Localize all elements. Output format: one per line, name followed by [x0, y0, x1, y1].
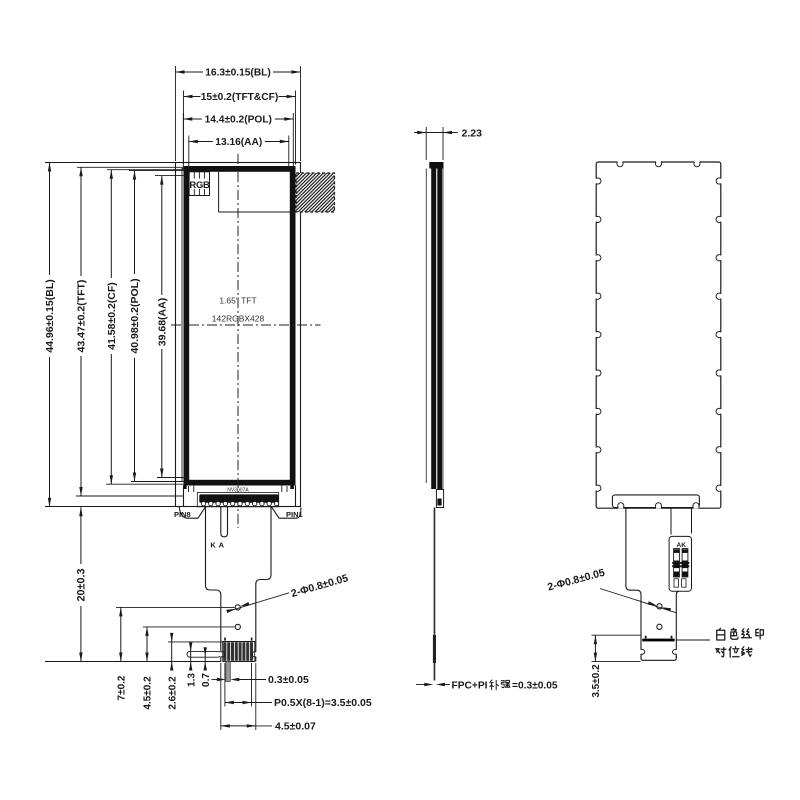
svg-text:K A: K A: [210, 541, 224, 550]
svg-text:3.5±0.2: 3.5±0.2: [591, 664, 602, 698]
svg-text:PIN1: PIN1: [286, 510, 303, 519]
svg-text:15±0.2(TFT&CF): 15±0.2(TFT&CF): [201, 92, 278, 103]
svg-text:41.58±0.2(CF): 41.58±0.2(CF): [106, 282, 118, 350]
svg-text:43.47±0.2(TFT): 43.47±0.2(TFT): [76, 280, 88, 353]
svg-text:40.98±0.2(POL): 40.98±0.2(POL): [129, 278, 141, 353]
svg-text:14.4±0.2(POL): 14.4±0.2(POL): [205, 115, 272, 126]
svg-text:0.7: 0.7: [201, 673, 212, 687]
svg-text:13.16(AA): 13.16(AA): [215, 137, 262, 148]
svg-text:16.3±0.15(BL): 16.3±0.15(BL): [205, 68, 271, 79]
svg-text:2.23: 2.23: [462, 128, 483, 140]
svg-text:P0.5X(8-1)=3.5±0.05: P0.5X(8-1)=3.5±0.05: [274, 697, 372, 709]
svg-text:PIN8: PIN8: [174, 510, 191, 519]
svg-text:2.6±0.2: 2.6±0.2: [167, 676, 178, 710]
svg-text:44.96±0.15(BL): 44.96±0.15(BL): [44, 279, 56, 352]
svg-text:1.3: 1.3: [186, 673, 197, 687]
svg-text:1.65″ TFT: 1.65″ TFT: [219, 296, 256, 306]
svg-text:39.68(AA): 39.68(AA): [156, 298, 168, 346]
svg-text:20±0.3: 20±0.3: [76, 569, 88, 602]
svg-text:142RGBX428: 142RGBX428: [212, 314, 265, 324]
svg-text:RGB: RGB: [189, 180, 210, 191]
svg-text:AK: AK: [677, 542, 687, 549]
svg-text:0.3±0.05: 0.3±0.05: [268, 674, 309, 686]
svg-text:FPC+PI: FPC+PI: [452, 681, 488, 692]
svg-text:4.5±0.07: 4.5±0.07: [275, 721, 316, 733]
svg-text:4.5±0.2: 4.5±0.2: [143, 676, 154, 710]
svg-text:=0.3±0.05: =0.3±0.05: [512, 681, 558, 692]
svg-text:7±0.2: 7±0.2: [116, 675, 127, 700]
